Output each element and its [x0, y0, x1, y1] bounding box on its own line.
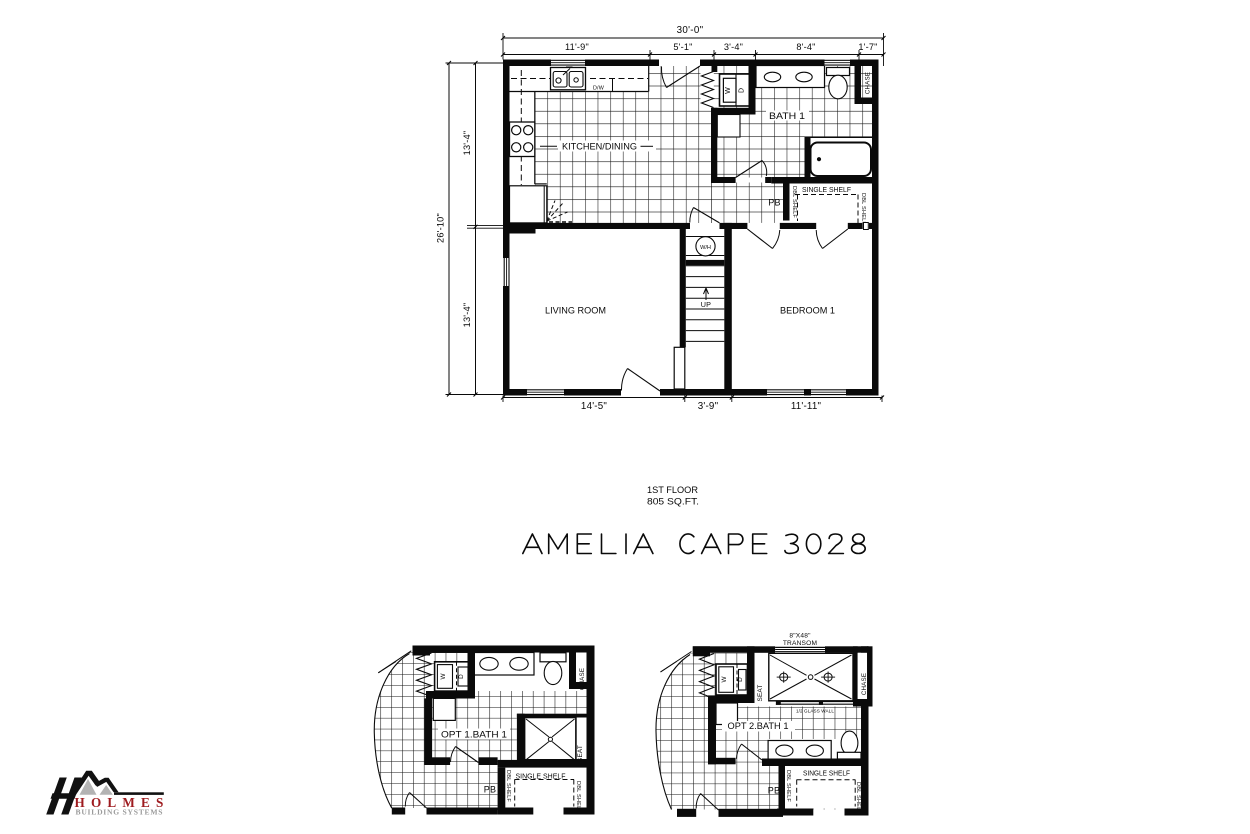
svg-text:1'-7": 1'-7" [858, 42, 877, 52]
svg-text:3'-9": 3'-9" [698, 401, 719, 412]
svg-text:D: D [739, 88, 746, 93]
svg-text:KITCHEN/DINING: KITCHEN/DINING [562, 142, 637, 153]
svg-text:5'-1": 5'-1" [673, 42, 692, 52]
svg-text:PB: PB [484, 785, 497, 795]
svg-text:26'-10": 26'-10" [436, 213, 446, 243]
svg-text:DBL SHELF: DBL SHELF [785, 770, 791, 802]
svg-text:CHASE: CHASE [861, 673, 868, 695]
svg-text:BEDROOM 1: BEDROOM 1 [780, 306, 835, 317]
svg-text:11'-9": 11'-9" [565, 42, 589, 52]
svg-text:SEAT: SEAT [757, 684, 764, 701]
svg-text:SINGLE SHELF: SINGLE SHELF [516, 771, 567, 780]
svg-text:30'-0": 30'-0" [677, 25, 704, 36]
svg-text:1/2 GLASS WALL: 1/2 GLASS WALL [796, 709, 834, 714]
svg-text:1ST FLOOR: 1ST FLOOR [647, 484, 698, 495]
svg-text:SINGLE SHELF: SINGLE SHELF [802, 185, 852, 194]
svg-text:BUILDING SYSTEMS: BUILDING SYSTEMS [76, 808, 164, 817]
svg-text:OPT 2.BATH 1: OPT 2.BATH 1 [728, 721, 789, 732]
svg-text:W: W [725, 87, 732, 94]
svg-text:UP: UP [701, 300, 711, 309]
svg-text:11'-11": 11'-11" [791, 401, 822, 412]
svg-text:PB: PB [768, 198, 781, 208]
svg-text:14'-5": 14'-5" [581, 401, 607, 412]
svg-text:TRANSOM: TRANSOM [783, 640, 817, 647]
svg-text:DBL SHELF: DBL SHELF [505, 770, 511, 802]
svg-text:805 SQ.FT.: 805 SQ.FT. [647, 496, 699, 507]
svg-text:13'-4": 13'-4" [462, 131, 472, 156]
svg-text:BATH 1: BATH 1 [769, 111, 805, 122]
svg-text:W: W [440, 673, 447, 680]
svg-text:OPT 1.BATH 1: OPT 1.BATH 1 [441, 730, 507, 741]
svg-text:D: D [737, 677, 744, 682]
svg-text:CHASE: CHASE [865, 72, 872, 94]
svg-text:W/H: W/H [700, 245, 711, 251]
svg-text:LIVING ROOM: LIVING ROOM [545, 306, 606, 317]
svg-text:DBL SHELF: DBL SHELF [791, 186, 797, 218]
svg-text:8"X48": 8"X48" [789, 633, 811, 640]
svg-text:DBL SHELF: DBL SHELF [860, 193, 866, 225]
svg-text:PB: PB [768, 786, 781, 796]
svg-text:W: W [721, 676, 728, 683]
svg-text:8'-4": 8'-4" [796, 42, 815, 52]
svg-text:13'-4": 13'-4" [462, 303, 472, 328]
svg-text:3'-4": 3'-4" [724, 42, 743, 52]
svg-text:D/W: D/W [593, 86, 605, 92]
svg-text:CHASE: CHASE [579, 668, 586, 690]
svg-text:SINGLE SHELF: SINGLE SHELF [803, 769, 851, 778]
svg-text:D: D [458, 674, 465, 679]
